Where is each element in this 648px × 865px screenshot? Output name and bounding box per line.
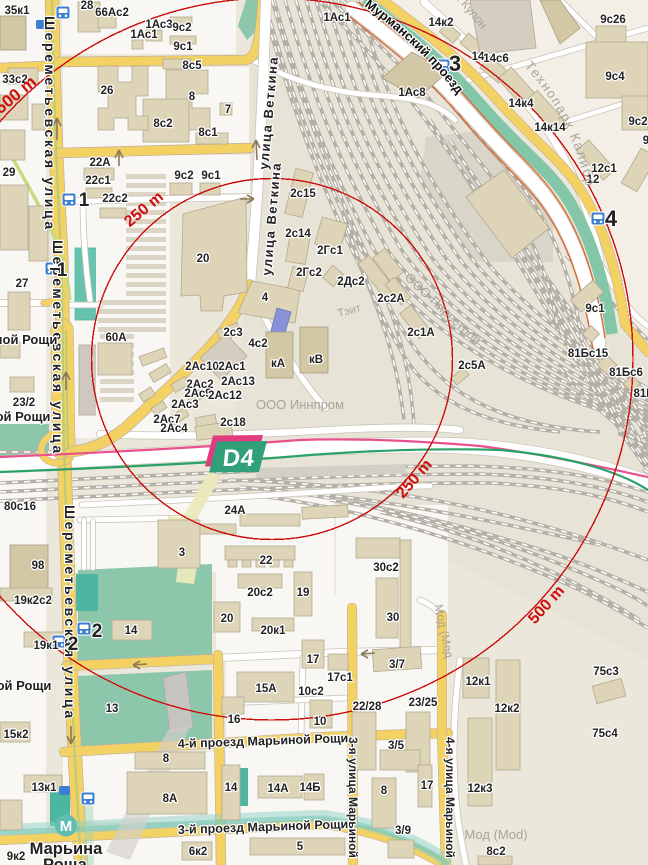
svg-text:2Ас10: 2Ас10 [185, 361, 219, 373]
svg-text:9с2: 9с2 [174, 170, 193, 182]
svg-text:22с2: 22с2 [102, 193, 128, 205]
svg-text:20с2: 20с2 [247, 587, 273, 599]
svg-text:9с2: 9с2 [172, 22, 191, 34]
svg-text:14Б: 14Б [299, 782, 320, 794]
svg-text:2Гс1: 2Гс1 [317, 245, 343, 257]
svg-text:15А: 15А [255, 683, 276, 695]
svg-text:13к1: 13к1 [32, 782, 58, 794]
svg-text:30с2: 30с2 [373, 562, 399, 574]
svg-text:2с2А: 2с2А [377, 293, 405, 305]
svg-text:2с15: 2с15 [290, 188, 316, 200]
svg-text:ной Рощи: ной Рощи [0, 332, 57, 347]
svg-text:20к1: 20к1 [261, 625, 287, 637]
svg-text:1Ас1: 1Ас1 [130, 29, 158, 41]
svg-text:3-я улица Марьиной: 3-я улица Марьиной [346, 737, 360, 858]
svg-text:28: 28 [81, 0, 94, 12]
svg-text:1Ас8: 1Ас8 [398, 87, 426, 99]
svg-text:3: 3 [449, 51, 461, 76]
svg-text:14к4: 14к4 [509, 98, 535, 110]
svg-text:22А: 22А [89, 157, 110, 169]
svg-text:ой Рощи: ой Рощи [0, 409, 50, 424]
svg-text:10: 10 [314, 716, 327, 728]
svg-text:75с3: 75с3 [593, 666, 619, 678]
svg-text:9с4: 9с4 [605, 71, 625, 83]
svg-text:2Гс2: 2Гс2 [296, 267, 322, 279]
svg-text:2Ас13: 2Ас13 [221, 376, 255, 388]
svg-text:1Ас1: 1Ас1 [323, 12, 351, 24]
svg-text:20: 20 [197, 253, 210, 265]
svg-text:2Ас4: 2Ас4 [160, 423, 188, 435]
svg-text:16: 16 [228, 714, 241, 726]
svg-text:9: 9 [643, 135, 648, 147]
svg-text:9с1: 9с1 [173, 41, 193, 53]
svg-text:2Ас12: 2Ас12 [208, 390, 242, 402]
svg-text:8: 8 [189, 91, 196, 103]
svg-text:20: 20 [221, 613, 234, 625]
svg-text:9с2: 9с2 [628, 116, 647, 128]
svg-text:9с1: 9с1 [585, 303, 605, 315]
svg-text:3/9: 3/9 [395, 825, 411, 837]
svg-text:кА: кА [271, 358, 285, 370]
svg-text:8: 8 [163, 753, 170, 765]
svg-text:60А: 60А [105, 332, 126, 344]
svg-text:22: 22 [260, 555, 273, 567]
svg-text:17с1: 17с1 [327, 672, 353, 684]
svg-text:80с16: 80с16 [4, 501, 36, 513]
svg-text:14: 14 [225, 782, 238, 794]
svg-text:8с1: 8с1 [198, 127, 218, 139]
svg-text:D4: D4 [221, 445, 256, 472]
svg-text:Роща: Роща [43, 856, 88, 865]
svg-text:8А: 8А [163, 793, 178, 805]
svg-text:9с1: 9с1 [201, 170, 221, 182]
svg-text:2: 2 [92, 621, 103, 642]
svg-text:4: 4 [605, 206, 618, 231]
svg-text:14к2: 14к2 [429, 17, 454, 29]
svg-text:ООО Иннпром: ООО Иннпром [256, 397, 344, 412]
svg-text:24А: 24А [224, 505, 245, 517]
svg-text:14с6: 14с6 [483, 53, 509, 65]
svg-text:9к2: 9к2 [7, 851, 26, 863]
svg-text:17: 17 [421, 780, 434, 792]
svg-text:7: 7 [225, 104, 231, 116]
svg-text:23/2: 23/2 [13, 397, 35, 409]
svg-text:8: 8 [381, 785, 388, 797]
svg-text:3: 3 [179, 547, 185, 559]
svg-text:Шереметьевская улица: Шереметьевская улица [42, 16, 58, 232]
svg-text:6к2: 6к2 [189, 846, 208, 858]
svg-text:8с2: 8с2 [153, 118, 172, 130]
svg-text:ой Рощи: ой Рощи [0, 678, 51, 693]
svg-text:19к2с2: 19к2с2 [14, 595, 52, 607]
svg-text:26: 26 [101, 85, 114, 97]
svg-text:1: 1 [79, 190, 90, 211]
svg-text:кВ: кВ [309, 354, 323, 366]
svg-text:19к1: 19к1 [34, 640, 60, 652]
svg-text:81Бс6: 81Бс6 [609, 367, 643, 379]
svg-text:17: 17 [307, 654, 320, 666]
svg-text:27: 27 [16, 278, 29, 290]
svg-text:10с2: 10с2 [298, 686, 324, 698]
svg-text:2Ас3: 2Ас3 [171, 399, 198, 411]
svg-text:М: М [60, 818, 73, 835]
svg-text:98: 98 [32, 560, 45, 572]
svg-text:2с18: 2с18 [220, 417, 246, 429]
svg-text:14: 14 [125, 625, 138, 637]
svg-text:2с3: 2с3 [223, 327, 242, 339]
svg-text:29: 29 [3, 167, 16, 179]
svg-text:81Б: 81Б [633, 388, 648, 400]
svg-text:2Ас1: 2Ас1 [218, 361, 246, 373]
svg-text:4с2: 4с2 [248, 338, 267, 350]
svg-text:3/5: 3/5 [388, 740, 405, 752]
svg-text:19: 19 [297, 587, 310, 599]
svg-text:15к2: 15к2 [4, 729, 29, 741]
svg-text:75с4: 75с4 [592, 728, 618, 740]
svg-text:8с5: 8с5 [182, 60, 202, 72]
svg-text:12к1: 12к1 [466, 676, 492, 688]
svg-text:3/7: 3/7 [389, 659, 405, 671]
svg-text:66Ас2: 66Ас2 [95, 7, 129, 19]
svg-text:Шереметьевская улица: Шереметьевская улица [62, 505, 78, 721]
svg-text:Мод (Mod): Мод (Mod) [464, 827, 527, 842]
svg-text:4: 4 [262, 292, 269, 304]
svg-text:2с5А: 2с5А [458, 360, 486, 372]
svg-text:81Бс15: 81Бс15 [568, 348, 609, 360]
svg-text:13: 13 [106, 703, 119, 715]
svg-text:23/25: 23/25 [409, 697, 438, 709]
svg-text:5: 5 [297, 841, 304, 853]
svg-text:22с1: 22с1 [85, 175, 111, 187]
svg-text:2с1А: 2с1А [407, 327, 435, 339]
svg-text:2: 2 [68, 634, 79, 655]
svg-text:9с26: 9с26 [600, 14, 626, 26]
svg-text:14А: 14А [267, 783, 288, 795]
svg-text:35к1: 35к1 [5, 5, 31, 17]
svg-text:1: 1 [57, 260, 68, 281]
svg-text:2с14: 2с14 [285, 228, 311, 240]
svg-text:22/28: 22/28 [353, 701, 382, 713]
svg-text:12к3: 12к3 [468, 783, 493, 795]
svg-text:30: 30 [387, 612, 400, 624]
svg-text:12к2: 12к2 [495, 703, 520, 715]
svg-text:4-я улица Марьиной: 4-я улица Марьиной [443, 737, 457, 858]
svg-text:2Дс2: 2Дс2 [337, 276, 364, 288]
svg-text:8с2: 8с2 [486, 846, 505, 858]
